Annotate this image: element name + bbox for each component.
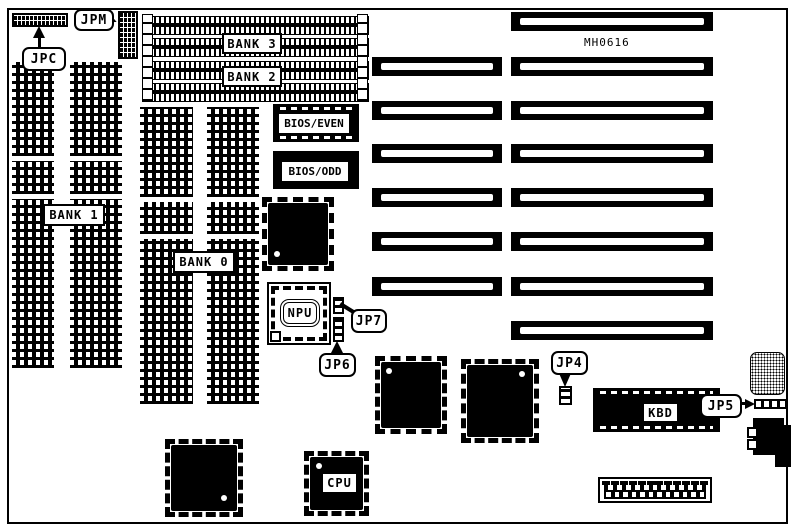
power-hole (664, 490, 673, 499)
power-hole (655, 490, 664, 499)
power-pin (657, 481, 661, 490)
isa-slot-short (372, 232, 502, 251)
power-pin (675, 481, 679, 490)
power-hole (604, 490, 613, 499)
cpu-label-text: CPU (327, 476, 352, 490)
jp6-label-text: JP6 (324, 358, 350, 373)
jumper-label-jp6: JP6 (319, 353, 356, 377)
jpm-label-text: JPM (81, 13, 107, 28)
jumper-label-jpc: JPC (22, 47, 66, 71)
power-pin-row (604, 481, 706, 490)
bios-even-label: BIOS/EVEN (277, 112, 351, 135)
qfp-chip-bottom-left (171, 445, 237, 511)
power-hole (672, 490, 681, 499)
isa-slot-long (511, 321, 713, 340)
isa-slot-short (372, 277, 502, 296)
bank3-label-text: BANK 3 (227, 37, 276, 51)
din-capacitor-1 (747, 427, 758, 438)
jumper-label-jpm: JPM (74, 9, 114, 31)
isa-slot-short (372, 144, 502, 163)
keyboard-fuse (750, 352, 785, 395)
isa-slot-long (511, 188, 713, 207)
kbd-label-text: KBD (648, 406, 673, 420)
isa-slot-long (511, 277, 713, 296)
power-pin (649, 481, 653, 490)
power-pin (693, 481, 697, 490)
jpc-pointer-line (38, 32, 41, 48)
power-pin (604, 481, 608, 490)
jumper-label-jp7: JP7 (351, 309, 387, 333)
pin1-dot (386, 368, 392, 374)
pin1-dot (221, 495, 227, 501)
bios-even-label-text: BIOS/EVEN (284, 117, 344, 130)
jp4-label-text: JP4 (556, 356, 582, 371)
bank0-label-text: BANK 0 (179, 255, 228, 269)
power-pin (613, 481, 617, 490)
pin1-dot (316, 463, 322, 469)
isa-slot-long (511, 12, 713, 31)
npu-label: NPU (283, 302, 317, 324)
isa-slot-long (511, 144, 713, 163)
pin1-dot (274, 251, 280, 257)
jp5-label-text: JP5 (708, 399, 734, 414)
bank2-label: BANK 2 (222, 66, 282, 87)
qfp-chip-right (467, 365, 533, 437)
npu-label-text: NPU (288, 306, 313, 320)
jumper-label-jp5: JP5 (700, 394, 742, 418)
motherboard-diagram: JPC JPM BANK 3 BANK 2 BIOS/EVEN BIOS/ODD… (0, 0, 791, 527)
power-hole (621, 490, 630, 499)
power-hole-row (604, 490, 706, 499)
isa-slot-short (372, 101, 502, 120)
power-hole (681, 490, 690, 499)
jp6-pointer-arrow (331, 341, 343, 353)
isa-slot-short (372, 188, 502, 207)
qfp-chip-left (381, 362, 441, 428)
cpu-label: CPU (321, 472, 358, 494)
power-pin (702, 481, 706, 490)
power-pin (640, 481, 644, 490)
jp6-jumper (333, 317, 344, 342)
jpc-label-text: JPC (31, 52, 57, 67)
din-capacitor-2 (747, 439, 758, 450)
bios-odd-label: BIOS/ODD (280, 160, 350, 183)
board-part-number: MH0616 (584, 36, 630, 49)
power-hole (647, 490, 656, 499)
npu-corner-mark (270, 331, 281, 342)
isa-slot-short (372, 57, 502, 76)
power-hole (638, 490, 647, 499)
isa-slot-long (511, 232, 713, 251)
bios-odd-label-text: BIOS/ODD (289, 165, 342, 178)
bank1-label: BANK 1 (43, 204, 105, 226)
power-pin (622, 481, 626, 490)
power-hole (630, 490, 639, 499)
keyboard-din-connector-step (775, 455, 791, 467)
kbd-label: KBD (642, 402, 679, 423)
bank0-label: BANK 0 (173, 251, 235, 273)
jp5-jumper (754, 399, 788, 409)
power-hole (698, 490, 707, 499)
expansion-slots (0, 0, 791, 527)
bank3-label: BANK 3 (222, 33, 282, 54)
isa-slot-long (511, 101, 713, 120)
power-hole (689, 490, 698, 499)
jp5-pointer-arrow (745, 399, 755, 409)
bank2-label-text: BANK 2 (227, 70, 276, 84)
isa-slot-long (511, 57, 713, 76)
pin1-dot (519, 371, 525, 377)
power-hole (613, 490, 622, 499)
power-pin (684, 481, 688, 490)
jumper-label-jp4: JP4 (551, 351, 588, 375)
jp7-label-text: JP7 (356, 314, 382, 329)
part-number-text: MH0616 (584, 36, 630, 49)
power-connector (598, 477, 712, 503)
power-pin (631, 481, 635, 490)
bank1-label-text: BANK 1 (49, 208, 98, 222)
jp4-jumper (559, 386, 572, 405)
power-pin (666, 481, 670, 490)
